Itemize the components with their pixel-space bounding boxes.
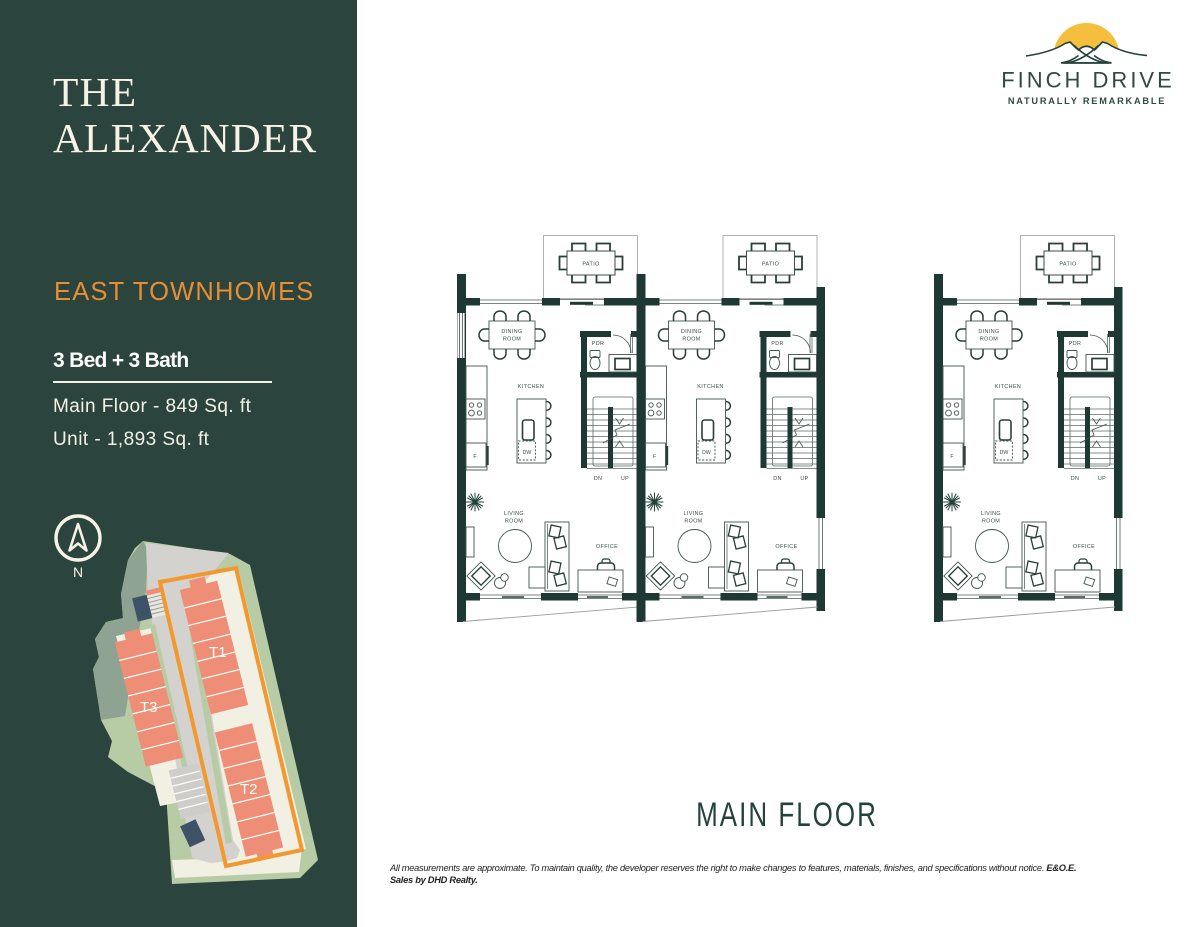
svg-text:T2: T2 [240, 781, 258, 798]
svg-text:FINCH DRIVE: FINCH DRIVE [1001, 68, 1175, 93]
svg-text:T3: T3 [140, 699, 158, 716]
svg-text:NATURALLY REMARKABLE: NATURALLY REMARKABLE [1008, 96, 1166, 106]
svg-text:T1: T1 [209, 644, 227, 661]
svg-text:MAIN FLOOR: MAIN FLOOR [696, 796, 878, 834]
